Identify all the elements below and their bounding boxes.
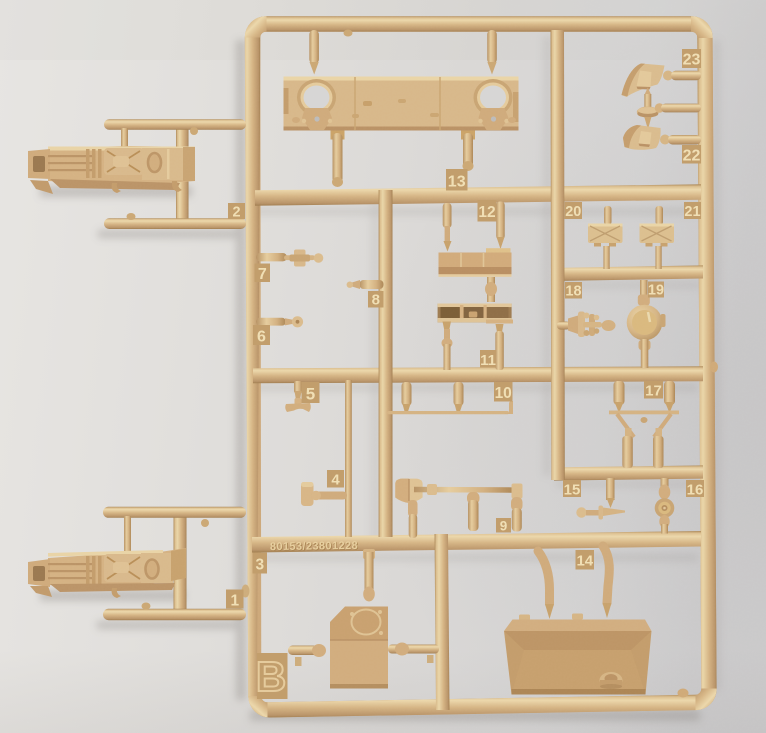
- svg-text:4: 4: [331, 472, 340, 489]
- svg-text:18: 18: [565, 284, 581, 300]
- svg-text:21: 21: [684, 204, 700, 220]
- svg-text:14: 14: [576, 553, 593, 570]
- svg-text:5: 5: [306, 385, 315, 404]
- svg-text:6: 6: [257, 329, 266, 346]
- svg-text:19: 19: [648, 283, 664, 299]
- svg-text:11: 11: [480, 352, 496, 369]
- svg-text:13: 13: [448, 174, 466, 191]
- svg-text:8: 8: [372, 292, 380, 309]
- svg-text:3: 3: [255, 557, 264, 574]
- svg-text:10: 10: [495, 385, 512, 402]
- svg-text:80153/23801228: 80153/23801228: [270, 540, 358, 553]
- svg-text:B: B: [256, 653, 286, 700]
- svg-text:22: 22: [683, 148, 701, 165]
- svg-text:12: 12: [478, 204, 495, 221]
- svg-text:9: 9: [500, 519, 508, 534]
- svg-text:15: 15: [564, 482, 581, 499]
- svg-text:2: 2: [232, 205, 240, 221]
- svg-text:16: 16: [687, 482, 704, 499]
- svg-text:20: 20: [565, 204, 581, 220]
- svg-text:17: 17: [645, 383, 662, 400]
- svg-text:23: 23: [683, 52, 701, 69]
- svg-text:1: 1: [230, 593, 239, 610]
- svg-text:7: 7: [258, 266, 267, 283]
